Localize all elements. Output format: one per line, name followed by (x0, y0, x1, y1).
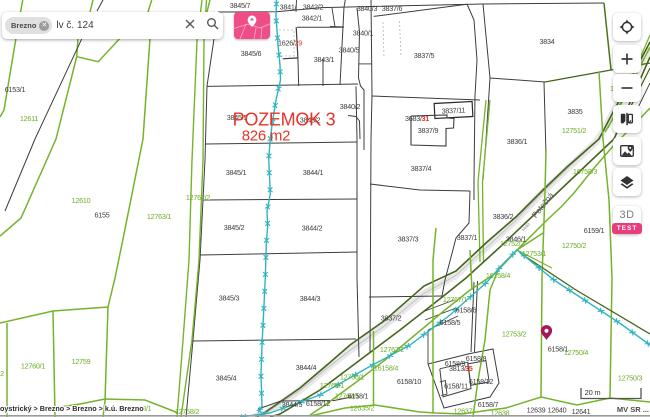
svg-text:3836/2: 3836/2 (493, 212, 514, 221)
svg-text:12765/1: 12765/1 (320, 381, 344, 390)
svg-text:3845/7: 3845/7 (230, 1, 251, 10)
svg-text:29: 29 (295, 39, 303, 48)
svg-text:3843/1: 3843/1 (314, 55, 335, 64)
svg-text:12753/2: 12753/2 (502, 330, 526, 339)
svg-text:12760/1: 12760/1 (21, 362, 45, 371)
svg-text:826 m2: 826 m2 (242, 128, 291, 145)
svg-text:6155: 6155 (95, 211, 110, 220)
svg-text:6158/5: 6158/5 (440, 318, 461, 327)
svg-text:3842/2: 3842/2 (303, 3, 324, 12)
svg-text:12641: 12641 (572, 407, 591, 416)
svg-text:3837/2: 3837/2 (381, 314, 402, 323)
svg-text:3844/2: 3844/2 (302, 224, 323, 233)
svg-text:POZEMOK 3: POZEMOK 3 (233, 110, 336, 130)
svg-text:3842/1: 3842/1 (302, 14, 323, 23)
svg-text:12752/2: 12752/2 (500, 239, 524, 248)
svg-text:12759: 12759 (72, 357, 91, 366)
svg-text:12763/1: 12763/1 (147, 212, 171, 221)
svg-text:3683/: 3683/ (405, 114, 422, 123)
svg-text:16758/3: 16758/3 (573, 167, 597, 176)
svg-text:3837/9: 3837/9 (418, 126, 439, 135)
svg-text:3844/4: 3844/4 (296, 363, 317, 372)
svg-text:12750/2: 12750/2 (562, 241, 586, 250)
svg-text:12639: 12639 (527, 406, 546, 415)
svg-text:35: 35 (465, 364, 473, 373)
svg-text:3837/4: 3837/4 (411, 164, 432, 173)
svg-text:12751/2: 12751/2 (562, 126, 586, 135)
svg-text:20 m: 20 m (585, 388, 601, 397)
svg-text:6158/10: 6158/10 (397, 377, 421, 386)
svg-text:16158/4: 16158/4 (486, 271, 510, 280)
svg-text:6159/1: 6159/1 (584, 226, 605, 235)
svg-text:12640: 12640 (548, 406, 567, 415)
svg-text:3845/1: 3845/1 (226, 168, 247, 177)
svg-text:3837/11: 3837/11 (441, 105, 465, 115)
svg-text:6158/8: 6158/8 (466, 354, 487, 363)
svg-text:3844/1: 3844/1 (303, 168, 324, 177)
svg-text:3845/6: 3845/6 (241, 49, 262, 58)
svg-text:12635/2: 12635/2 (350, 404, 374, 413)
svg-text:3845/4: 3845/4 (216, 374, 237, 383)
svg-text:3813/: 3813/ (449, 364, 466, 373)
svg-text:6158/11: 6158/11 (444, 382, 468, 391)
svg-text:6158/1: 6158/1 (348, 392, 369, 401)
svg-text:3835: 3835 (568, 107, 583, 116)
svg-text:3836/1: 3836/1 (507, 137, 528, 146)
svg-text:6153/1: 6153/1 (5, 85, 26, 94)
svg-text:3845/2: 3845/2 (224, 223, 245, 232)
svg-text:3837/6: 3837/6 (382, 4, 403, 13)
svg-text:12762/2: 12762/2 (186, 193, 210, 202)
svg-text:1626/: 1626/ (278, 39, 295, 48)
svg-text:3844/3: 3844/3 (300, 294, 321, 303)
svg-text:Malá: Malá (521, 221, 532, 233)
svg-text:12758/2: 12758/2 (175, 407, 199, 416)
svg-text:12750/3: 12750/3 (618, 374, 642, 383)
svg-text:12767/1: 12767/1 (443, 295, 467, 304)
svg-text:3840/2: 3840/2 (340, 102, 361, 111)
svg-text:6158/12: 6158/12 (469, 377, 493, 386)
svg-text:3834: 3834 (540, 37, 555, 46)
svg-text:16158/4: 16158/4 (374, 364, 398, 373)
svg-text:3840/3: 3840/3 (357, 4, 378, 13)
svg-text:12611: 12611 (20, 114, 38, 123)
svg-text:6158/12: 6158/12 (306, 399, 330, 408)
svg-text:3840/5: 3840/5 (339, 46, 360, 55)
svg-text:3840/1: 3840/1 (353, 29, 374, 38)
svg-text:31: 31 (422, 114, 430, 123)
svg-text:6158/6: 6158/6 (456, 306, 477, 315)
svg-text:2: 2 (0, 369, 4, 378)
svg-text:3841/: 3841/ (280, 3, 297, 12)
svg-text:3837/5: 3837/5 (414, 51, 435, 60)
svg-text:3837/3: 3837/3 (398, 235, 419, 244)
svg-text:12637: 12637 (454, 407, 473, 416)
svg-text:3844/5: 3844/5 (282, 400, 303, 409)
svg-text:12767/2: 12767/2 (380, 345, 404, 354)
svg-text:12753/1: 12753/1 (522, 249, 546, 258)
svg-text:3837/1: 3837/1 (457, 233, 478, 242)
svg-text:12610: 12610 (72, 196, 91, 205)
svg-text:12750/4: 12750/4 (564, 348, 588, 357)
svg-text:3845/3: 3845/3 (219, 294, 240, 303)
